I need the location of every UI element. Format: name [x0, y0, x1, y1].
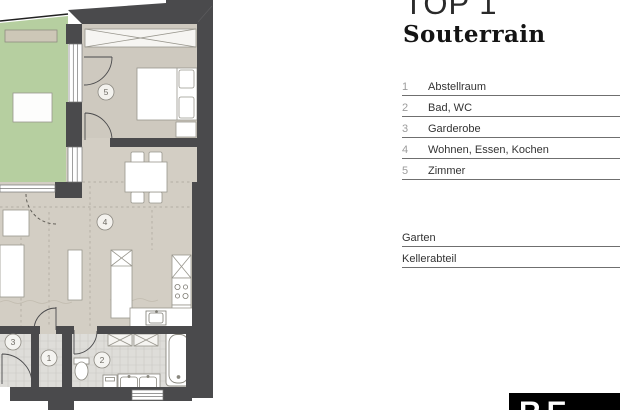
- brand-logo: RE: [509, 393, 620, 410]
- legend-label: Bad, WC: [428, 102, 620, 114]
- nightstand: [176, 122, 196, 137]
- legend-label: Garderobe: [428, 123, 620, 135]
- page: 5 4 3 1 2 TOP 1 Souterrain: [0, 0, 620, 410]
- svg-text:4: 4: [103, 217, 108, 227]
- legend-num: 1: [402, 81, 428, 93]
- svg-text:3: 3: [11, 337, 16, 347]
- legend-label: Zimmer: [428, 165, 620, 177]
- legend-row-garten: Garten: [402, 226, 620, 247]
- page-title: TOP 1: [404, 0, 497, 22]
- legend-num: 3: [402, 123, 428, 135]
- room-marker-3: 3: [5, 334, 21, 350]
- garden-planter: [5, 30, 57, 42]
- brand-logo-text: RE: [519, 396, 573, 410]
- coffee-table: [3, 210, 29, 236]
- toilet: [74, 358, 89, 380]
- legend-row-wohnen: 4 Wohnen, Essen, Kochen: [402, 138, 620, 159]
- room-marker-2: 2: [94, 352, 110, 368]
- garden-table: [13, 93, 52, 122]
- legend-label: Abstellraum: [428, 81, 620, 93]
- room-legend: 1 Abstellraum 2 Bad, WC 3 Garderobe 4 Wo…: [402, 75, 620, 180]
- kitchen-tall-units: [111, 250, 132, 318]
- svg-text:5: 5: [104, 87, 109, 97]
- sideboard: [68, 250, 82, 300]
- room-marker-5: 5: [98, 84, 114, 100]
- extras-legend: Garten Kellerabteil: [402, 226, 620, 268]
- wardrobe: [85, 29, 196, 47]
- legend-row-kellerabteil: Kellerabteil: [402, 247, 620, 268]
- legend-panel: TOP 1 Souterrain 1 Abstellraum 2 Bad, WC…: [402, 0, 620, 410]
- room-marker-1: 1: [41, 350, 57, 366]
- legend-num: 2: [402, 102, 428, 114]
- floor-plan: 5 4 3 1 2: [0, 0, 215, 410]
- legend-label: Garten: [402, 232, 620, 244]
- legend-row-bad-wc: 2 Bad, WC: [402, 96, 620, 117]
- legend-row-abstellraum: 1 Abstellraum: [402, 75, 620, 96]
- bed: [137, 68, 197, 120]
- legend-num: 4: [402, 144, 428, 156]
- legend-row-zimmer: 5 Zimmer: [402, 159, 620, 180]
- room-marker-4: 4: [97, 214, 113, 230]
- legend-label: Wohnen, Essen, Kochen: [428, 144, 620, 156]
- legend-label: Kellerabteil: [402, 253, 620, 265]
- page-subtitle: Souterrain: [403, 21, 546, 48]
- legend-num: 5: [402, 165, 428, 177]
- svg-text:1: 1: [47, 353, 52, 363]
- sofa: [0, 245, 24, 297]
- legend-row-garderobe: 3 Garderobe: [402, 117, 620, 138]
- kitchen-sink: [146, 311, 166, 326]
- svg-text:2: 2: [100, 355, 105, 365]
